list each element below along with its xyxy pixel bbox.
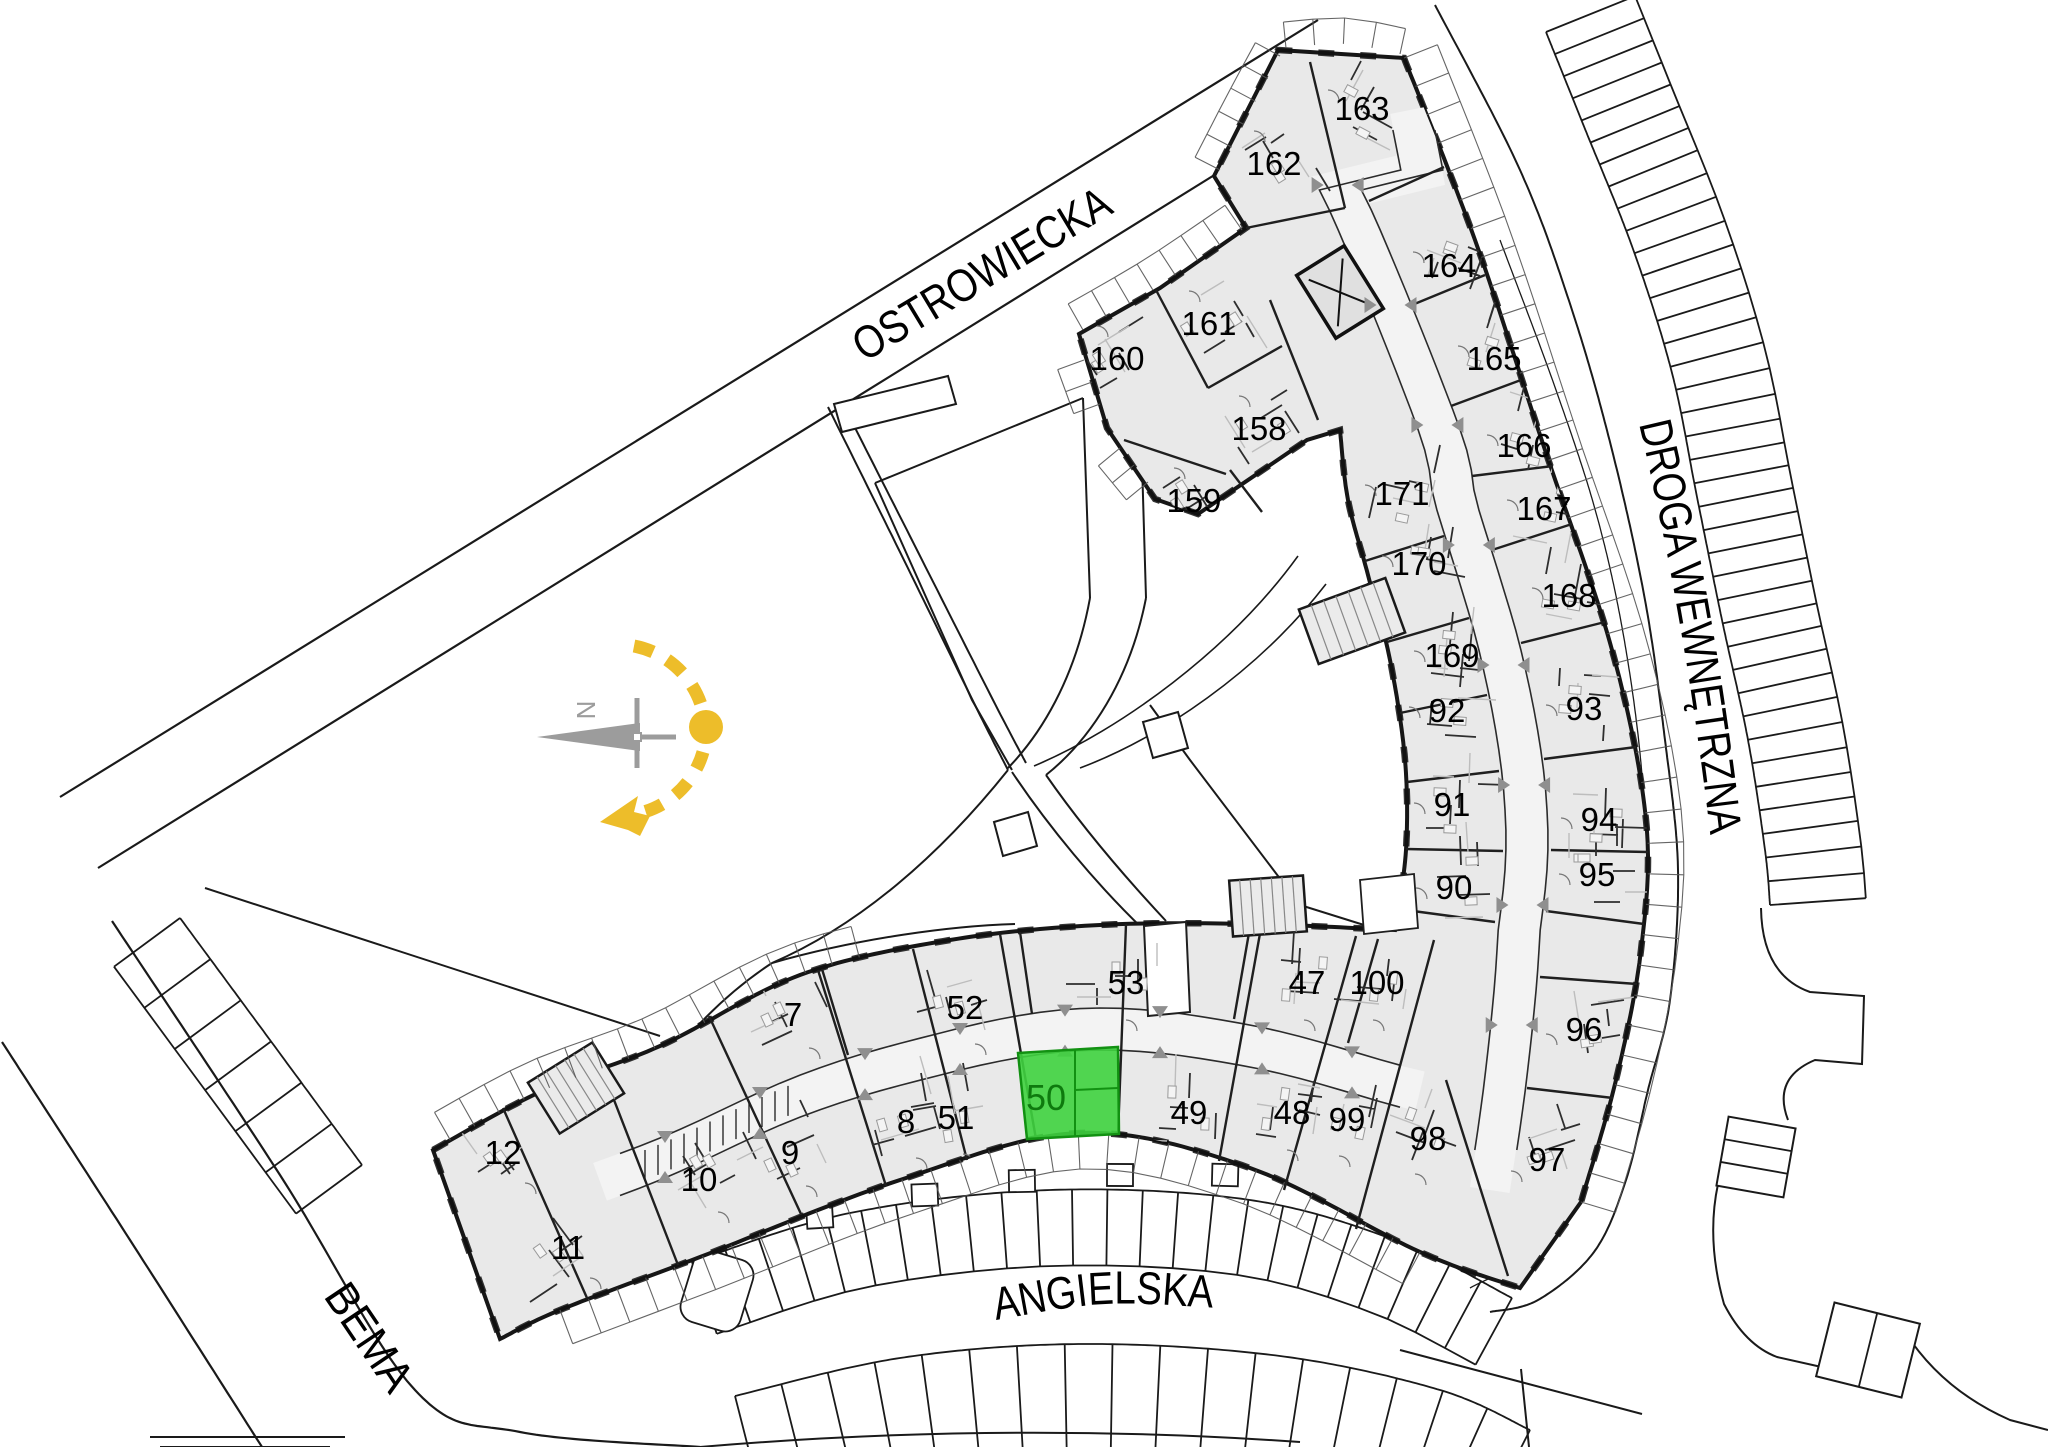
svg-text:N: N [571,701,601,720]
svg-text:158: 158 [1231,410,1286,447]
svg-text:12: 12 [485,1134,522,1171]
svg-text:99: 99 [1329,1101,1366,1138]
svg-text:169: 169 [1424,637,1479,674]
svg-text:171: 171 [1374,475,1429,512]
svg-text:10: 10 [681,1161,718,1198]
svg-text:98: 98 [1410,1120,1447,1157]
svg-text:95: 95 [1579,856,1616,893]
svg-text:51: 51 [938,1099,975,1136]
svg-text:92: 92 [1429,692,1466,729]
svg-text:167: 167 [1516,490,1571,527]
svg-text:11: 11 [551,1229,585,1266]
svg-text:164: 164 [1421,247,1476,284]
svg-text:9: 9 [781,1134,799,1171]
svg-text:90: 90 [1436,869,1473,906]
svg-text:7: 7 [784,996,802,1033]
svg-text:93: 93 [1566,690,1603,727]
svg-text:165: 165 [1466,340,1521,377]
svg-text:162: 162 [1246,145,1301,182]
svg-text:52: 52 [947,989,984,1026]
svg-text:48: 48 [1274,1094,1311,1131]
svg-text:50: 50 [1026,1077,1066,1118]
svg-text:97: 97 [1529,1141,1566,1178]
svg-text:170: 170 [1391,545,1446,582]
svg-text:163: 163 [1334,90,1389,127]
svg-text:159: 159 [1166,482,1221,519]
svg-text:168: 168 [1541,577,1596,614]
svg-text:96: 96 [1566,1011,1603,1048]
svg-text:166: 166 [1496,427,1551,464]
svg-text:91: 91 [1434,786,1471,823]
svg-text:49: 49 [1171,1094,1208,1131]
svg-text:161: 161 [1181,305,1236,342]
svg-text:94: 94 [1581,801,1618,838]
svg-text:160: 160 [1089,340,1144,377]
svg-text:53: 53 [1108,964,1145,1001]
svg-text:100: 100 [1349,964,1404,1001]
svg-text:8: 8 [897,1103,915,1140]
svg-text:47: 47 [1289,964,1326,1001]
